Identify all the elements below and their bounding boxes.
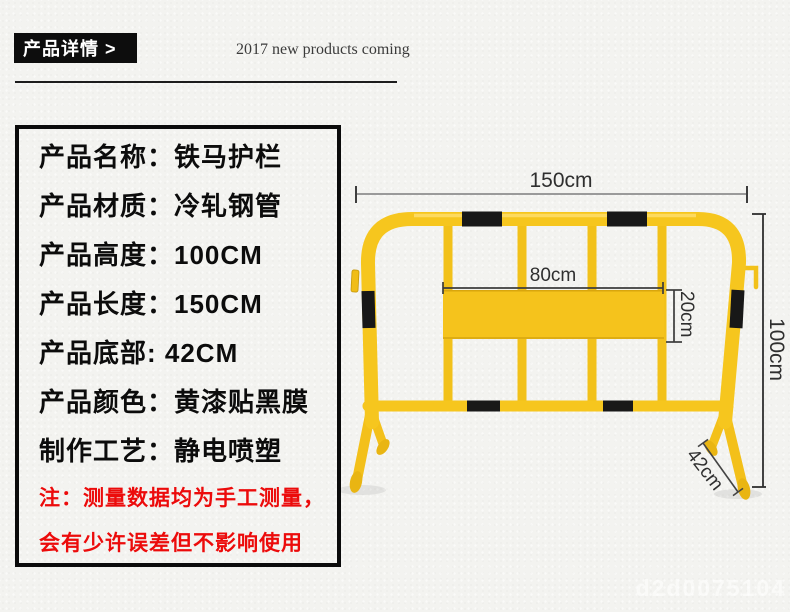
measure-note-line1: 注：测量数据均为手工测量， — [39, 474, 337, 519]
barrier-legs — [357, 410, 743, 487]
right-hook — [744, 268, 756, 287]
spec-row-material: 产品材质：冷轧钢管 — [39, 180, 337, 229]
watermark-text: d2d0075104 — [636, 575, 786, 602]
header-divider — [15, 81, 397, 83]
left-hook — [351, 270, 359, 292]
spec-row-height: 产品高度：100CM — [39, 229, 337, 278]
dim-panel-width-label: 80cm — [530, 265, 576, 286]
left-foot-shadow — [340, 485, 386, 495]
spec-row-name: 产品名称：铁马护栏 — [39, 131, 337, 180]
right-foot-shadow — [714, 489, 762, 499]
spec-row-length: 产品长度：150CM — [39, 278, 337, 327]
dim-height-label: 100cm — [765, 318, 788, 381]
section-title-badge: 产品详情 > — [14, 33, 137, 63]
dim-width-label: 150cm — [529, 169, 592, 192]
barrier-diagram: 150cm 80cm 20cm 100cm 42cm — [340, 160, 790, 512]
spec-row-process: 制作工艺：静电喷塑 — [39, 425, 337, 474]
dim-width-150: 150cm — [356, 169, 747, 203]
dim-panel-width-80: 80cm — [443, 265, 663, 294]
dim-foot-label: 42cm — [682, 445, 727, 495]
section-title-label: 产品详情 > — [23, 35, 117, 61]
tagline-text: 2017 new products coming — [236, 41, 410, 59]
barrier-center-panel — [443, 290, 664, 339]
dim-height-100: 100cm — [752, 214, 788, 487]
spec-table: 产品名称：铁马护栏 产品材质：冷轧钢管 产品高度：100CM 产品长度：150C… — [15, 125, 341, 567]
measure-note-line2: 会有少许误差但不影响使用 — [39, 519, 337, 564]
product-detail-image: 产品详情 > 2017 new products coming 产品名称：铁马护… — [0, 0, 790, 612]
spec-row-color: 产品颜色：黄漆贴黑膜 — [39, 376, 337, 425]
spec-row-base: 产品底部: 42CM — [39, 327, 337, 376]
dim-panel-height-label: 20cm — [676, 291, 697, 337]
dim-panel-height-20: 20cm — [666, 290, 697, 342]
